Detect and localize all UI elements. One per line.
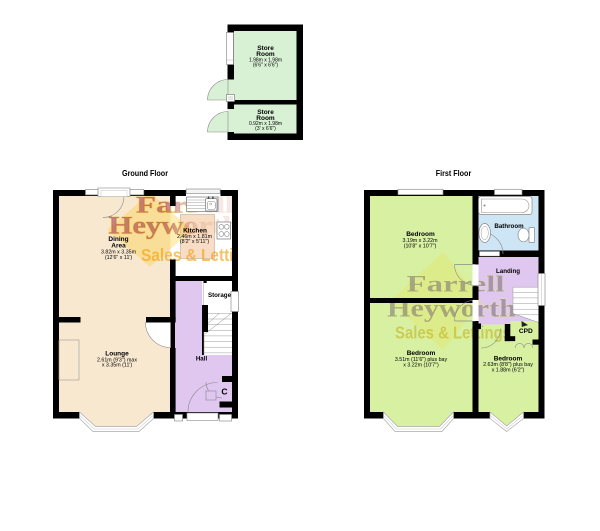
svg-text:Bedroom: Bedroom (406, 231, 435, 238)
svg-text:x 3.22m (10'7"): x 3.22m (10'7") (403, 363, 439, 369)
svg-text:Bathroom: Bathroom (494, 223, 524, 230)
svg-text:x 1.88m (6'2"): x 1.88m (6'2") (492, 368, 525, 374)
svg-text:Lounge: Lounge (105, 351, 129, 358)
svg-text:(12'6" x 11'): (12'6" x 11') (105, 255, 133, 261)
svg-text:Landing: Landing (496, 268, 520, 275)
svg-text:x 3.35m (11'): x 3.35m (11') (102, 363, 133, 369)
svg-text:Hall: Hall (196, 356, 208, 363)
svg-text:Storage: Storage (208, 292, 232, 299)
svg-text:(8'2" x 5'11"): (8'2" x 5'11") (180, 239, 209, 245)
svg-text:First Floor: First Floor (436, 168, 472, 178)
svg-text:Sales & Lettings: Sales & Lettings (395, 323, 511, 343)
svg-text:Bedroom: Bedroom (407, 350, 436, 357)
svg-text:(6'6" x 6'6"): (6'6" x 6'6") (253, 63, 279, 69)
svg-text:C: C (221, 387, 227, 397)
svg-text:Farrell: Farrell (407, 272, 505, 297)
svg-text:Area: Area (111, 243, 126, 250)
svg-text:CPD: CPD (519, 328, 533, 335)
svg-text:Ground Floor: Ground Floor (122, 168, 169, 178)
svg-text:(3' x 6'6"): (3' x 6'6") (255, 126, 276, 132)
svg-text:(10'8" x 10'7"): (10'8" x 10'7") (404, 244, 437, 250)
